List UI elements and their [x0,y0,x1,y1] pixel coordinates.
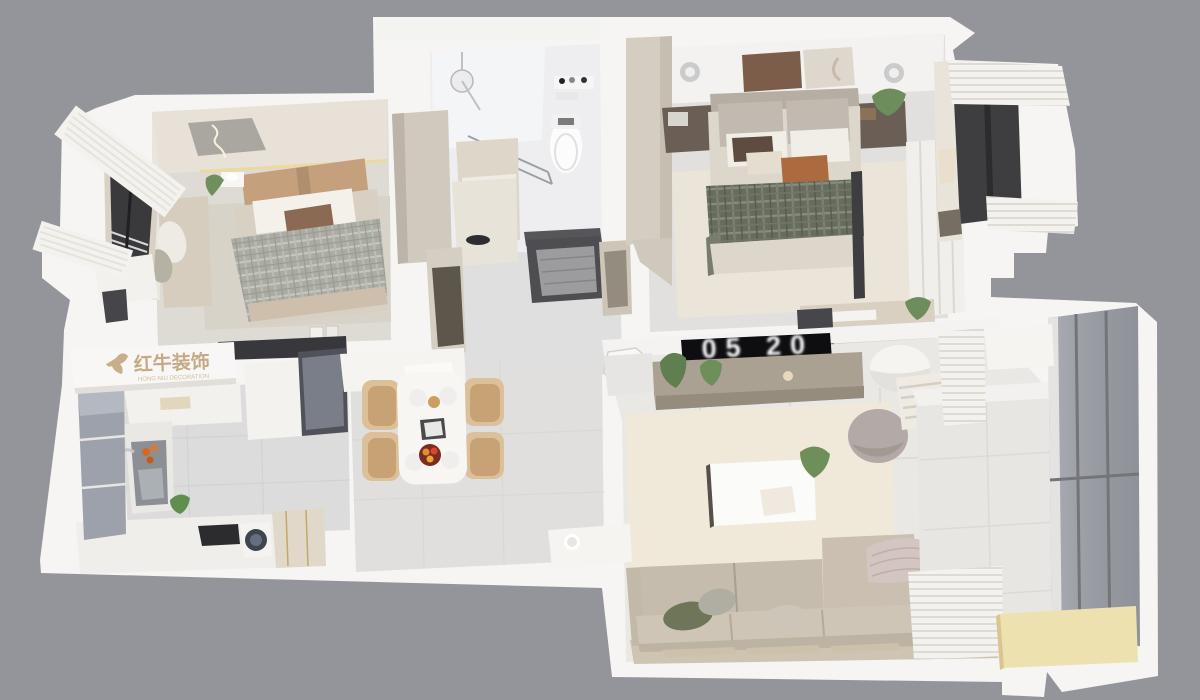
svg-text:红牛装饰: 红牛装饰 [133,350,210,376]
